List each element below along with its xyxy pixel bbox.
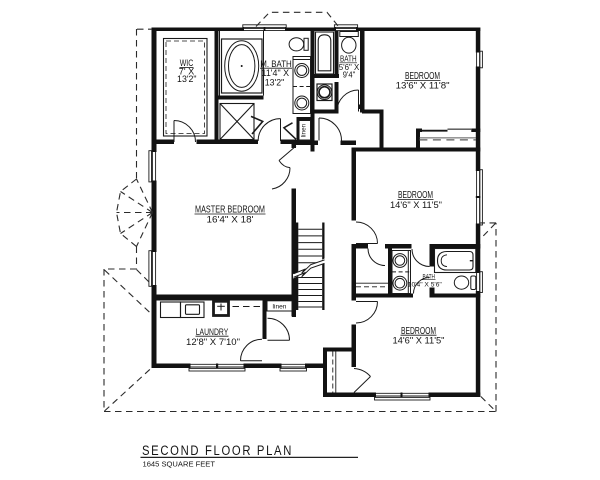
svg-text:1645 SQUARE FEET: 1645 SQUARE FEET — [143, 461, 216, 468]
svg-text:13'6" X 11'8": 13'6" X 11'8" — [396, 80, 450, 91]
svg-text:13'2": 13'2" — [265, 78, 285, 88]
svg-text:SECOND FLOOR PLAN: SECOND FLOOR PLAN — [142, 443, 293, 458]
svg-text:13'2": 13'2" — [177, 74, 197, 84]
svg-text:16'4" X 18': 16'4" X 18' — [207, 213, 254, 224]
svg-text:14'6" X 11'5": 14'6" X 11'5" — [390, 199, 442, 210]
svg-text:10'4" X 5'6": 10'4" X 5'6" — [408, 282, 443, 289]
svg-text:linen: linen — [273, 304, 287, 311]
svg-text:M. BATH: M. BATH — [260, 58, 292, 69]
svg-text:12'8" X 7'10": 12'8" X 7'10" — [186, 337, 240, 347]
svg-text:linen: linen — [300, 123, 307, 137]
svg-text:9'4": 9'4" — [343, 71, 356, 80]
svg-text:14'6" X 11'5": 14'6" X 11'5" — [393, 335, 445, 346]
